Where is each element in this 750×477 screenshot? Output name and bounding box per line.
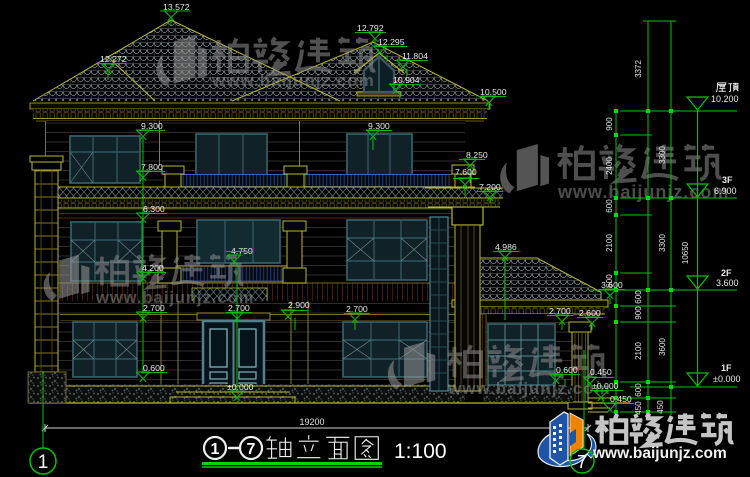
svg-text:7: 7 — [577, 452, 587, 472]
svg-text:www.baijunjz.com: www.baijunjz.com — [592, 445, 727, 462]
svg-text:3372: 3372 — [634, 60, 643, 78]
svg-text:1: 1 — [38, 452, 49, 473]
svg-text:±0.000: ±0.000 — [713, 374, 740, 384]
svg-text:7: 7 — [247, 441, 256, 458]
svg-text:1F: 1F — [721, 363, 732, 373]
svg-text:2.900: 2.900 — [288, 300, 310, 310]
svg-text:450: 450 — [634, 401, 643, 415]
svg-text:±0.000: ±0.000 — [592, 381, 619, 391]
svg-text:10.200: 10.200 — [711, 94, 739, 104]
svg-text:600: 600 — [634, 383, 643, 397]
svg-text:900: 900 — [634, 306, 643, 320]
svg-text:2F: 2F — [721, 268, 732, 278]
svg-text:900: 900 — [605, 117, 614, 131]
svg-text:6.900: 6.900 — [714, 186, 737, 196]
svg-text:3300: 3300 — [658, 146, 667, 164]
svg-text:0.450: 0.450 — [590, 367, 612, 377]
svg-text:2100: 2100 — [605, 234, 614, 252]
svg-text:450: 450 — [656, 400, 665, 414]
svg-text:600: 600 — [605, 199, 614, 213]
svg-text:3.600: 3.600 — [716, 278, 739, 288]
svg-text:3F: 3F — [722, 175, 733, 185]
svg-text:19200: 19200 — [299, 417, 324, 427]
svg-text:www.baijunjz.com: www.baijunjz.com — [211, 71, 375, 90]
svg-text:2400: 2400 — [605, 157, 614, 175]
svg-text:1:100: 1:100 — [394, 440, 447, 463]
svg-text:www.baijunjz.com: www.baijunjz.com — [447, 379, 611, 398]
svg-text:3600: 3600 — [658, 338, 667, 356]
svg-text:2100: 2100 — [634, 342, 643, 360]
svg-text:7.600: 7.600 — [455, 167, 477, 177]
svg-text:12.272: 12.272 — [100, 54, 127, 64]
svg-text:10650: 10650 — [681, 241, 690, 264]
svg-text:www.baijunjz.com: www.baijunjz.com — [557, 182, 729, 202]
svg-text:1: 1 — [211, 441, 220, 458]
svg-text:3300: 3300 — [658, 234, 667, 252]
svg-text:600: 600 — [634, 290, 643, 304]
